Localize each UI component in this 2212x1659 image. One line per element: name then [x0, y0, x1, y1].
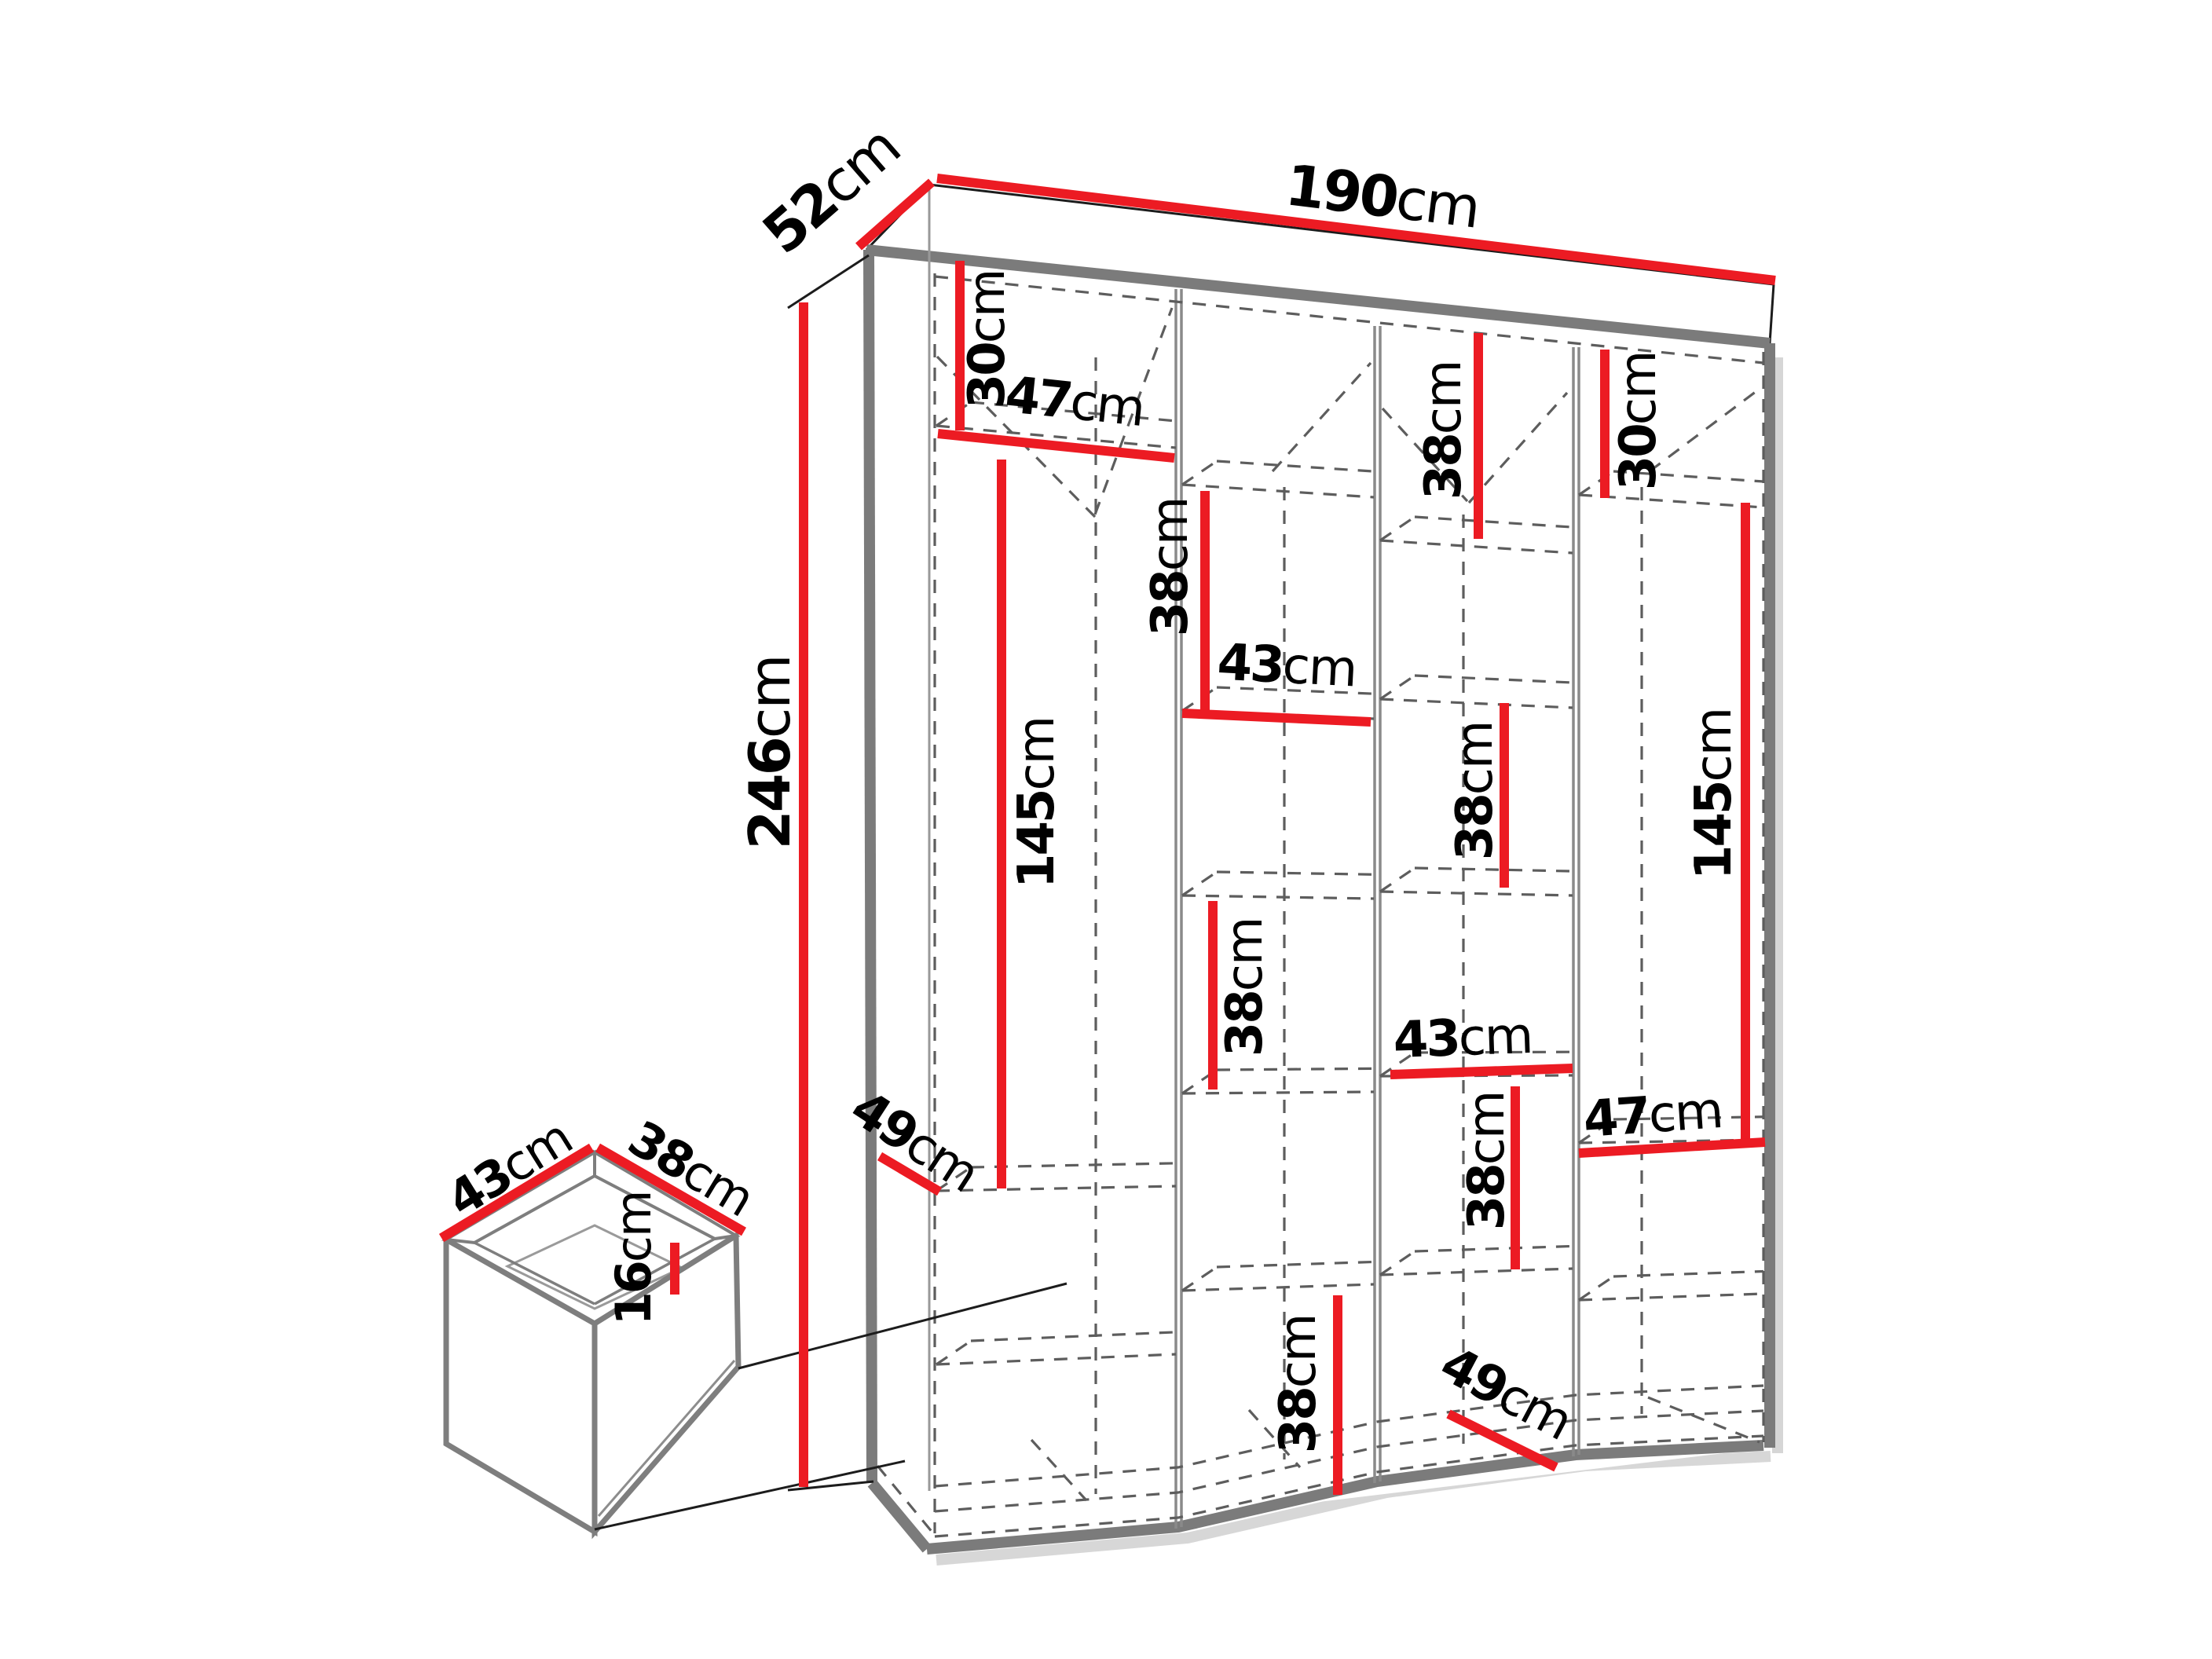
dim-label-col3-lower-height: 38cm [1458, 1092, 1516, 1231]
dim-label-col1-hanging-height: 145cm [1008, 717, 1066, 888]
dim-label-col3-width: 43cm [1392, 1007, 1533, 1070]
wardrobe-dimension-diagram: 190cm52cm246cm30cm47cm145cm49cm38cm43cm3… [0, 0, 2212, 1659]
diagram-canvas: 190cm52cm246cm30cm47cm145cm49cm38cm43cm3… [0, 0, 2212, 1659]
height-tick-top [788, 255, 869, 308]
dim-label-col4-width: 47cm [1581, 1082, 1723, 1149]
dim-label-col2-top-height: 38cm [1141, 498, 1199, 637]
dim-label-col2-width: 43cm [1216, 633, 1357, 698]
dim-label-drawer-height: 16cm [605, 1192, 662, 1326]
dim-label-col2-bottom-height: 38cm [1269, 1315, 1328, 1454]
dim-label-col3-top-height: 38cm [1415, 361, 1473, 500]
dim-label-overall-height-left: 246cm [737, 655, 803, 849]
dim-label-col2-middle-height: 38cm [1216, 918, 1274, 1057]
dim-line-col3-width [1390, 1068, 1573, 1075]
dim-label-col3-shelf-height: 38cm [1446, 722, 1504, 861]
dim-label-col4-top-height: 30cm [1610, 352, 1668, 491]
dim-label-col4-hanging-height: 145cm [1685, 709, 1743, 880]
front-left-edge [869, 250, 872, 1483]
